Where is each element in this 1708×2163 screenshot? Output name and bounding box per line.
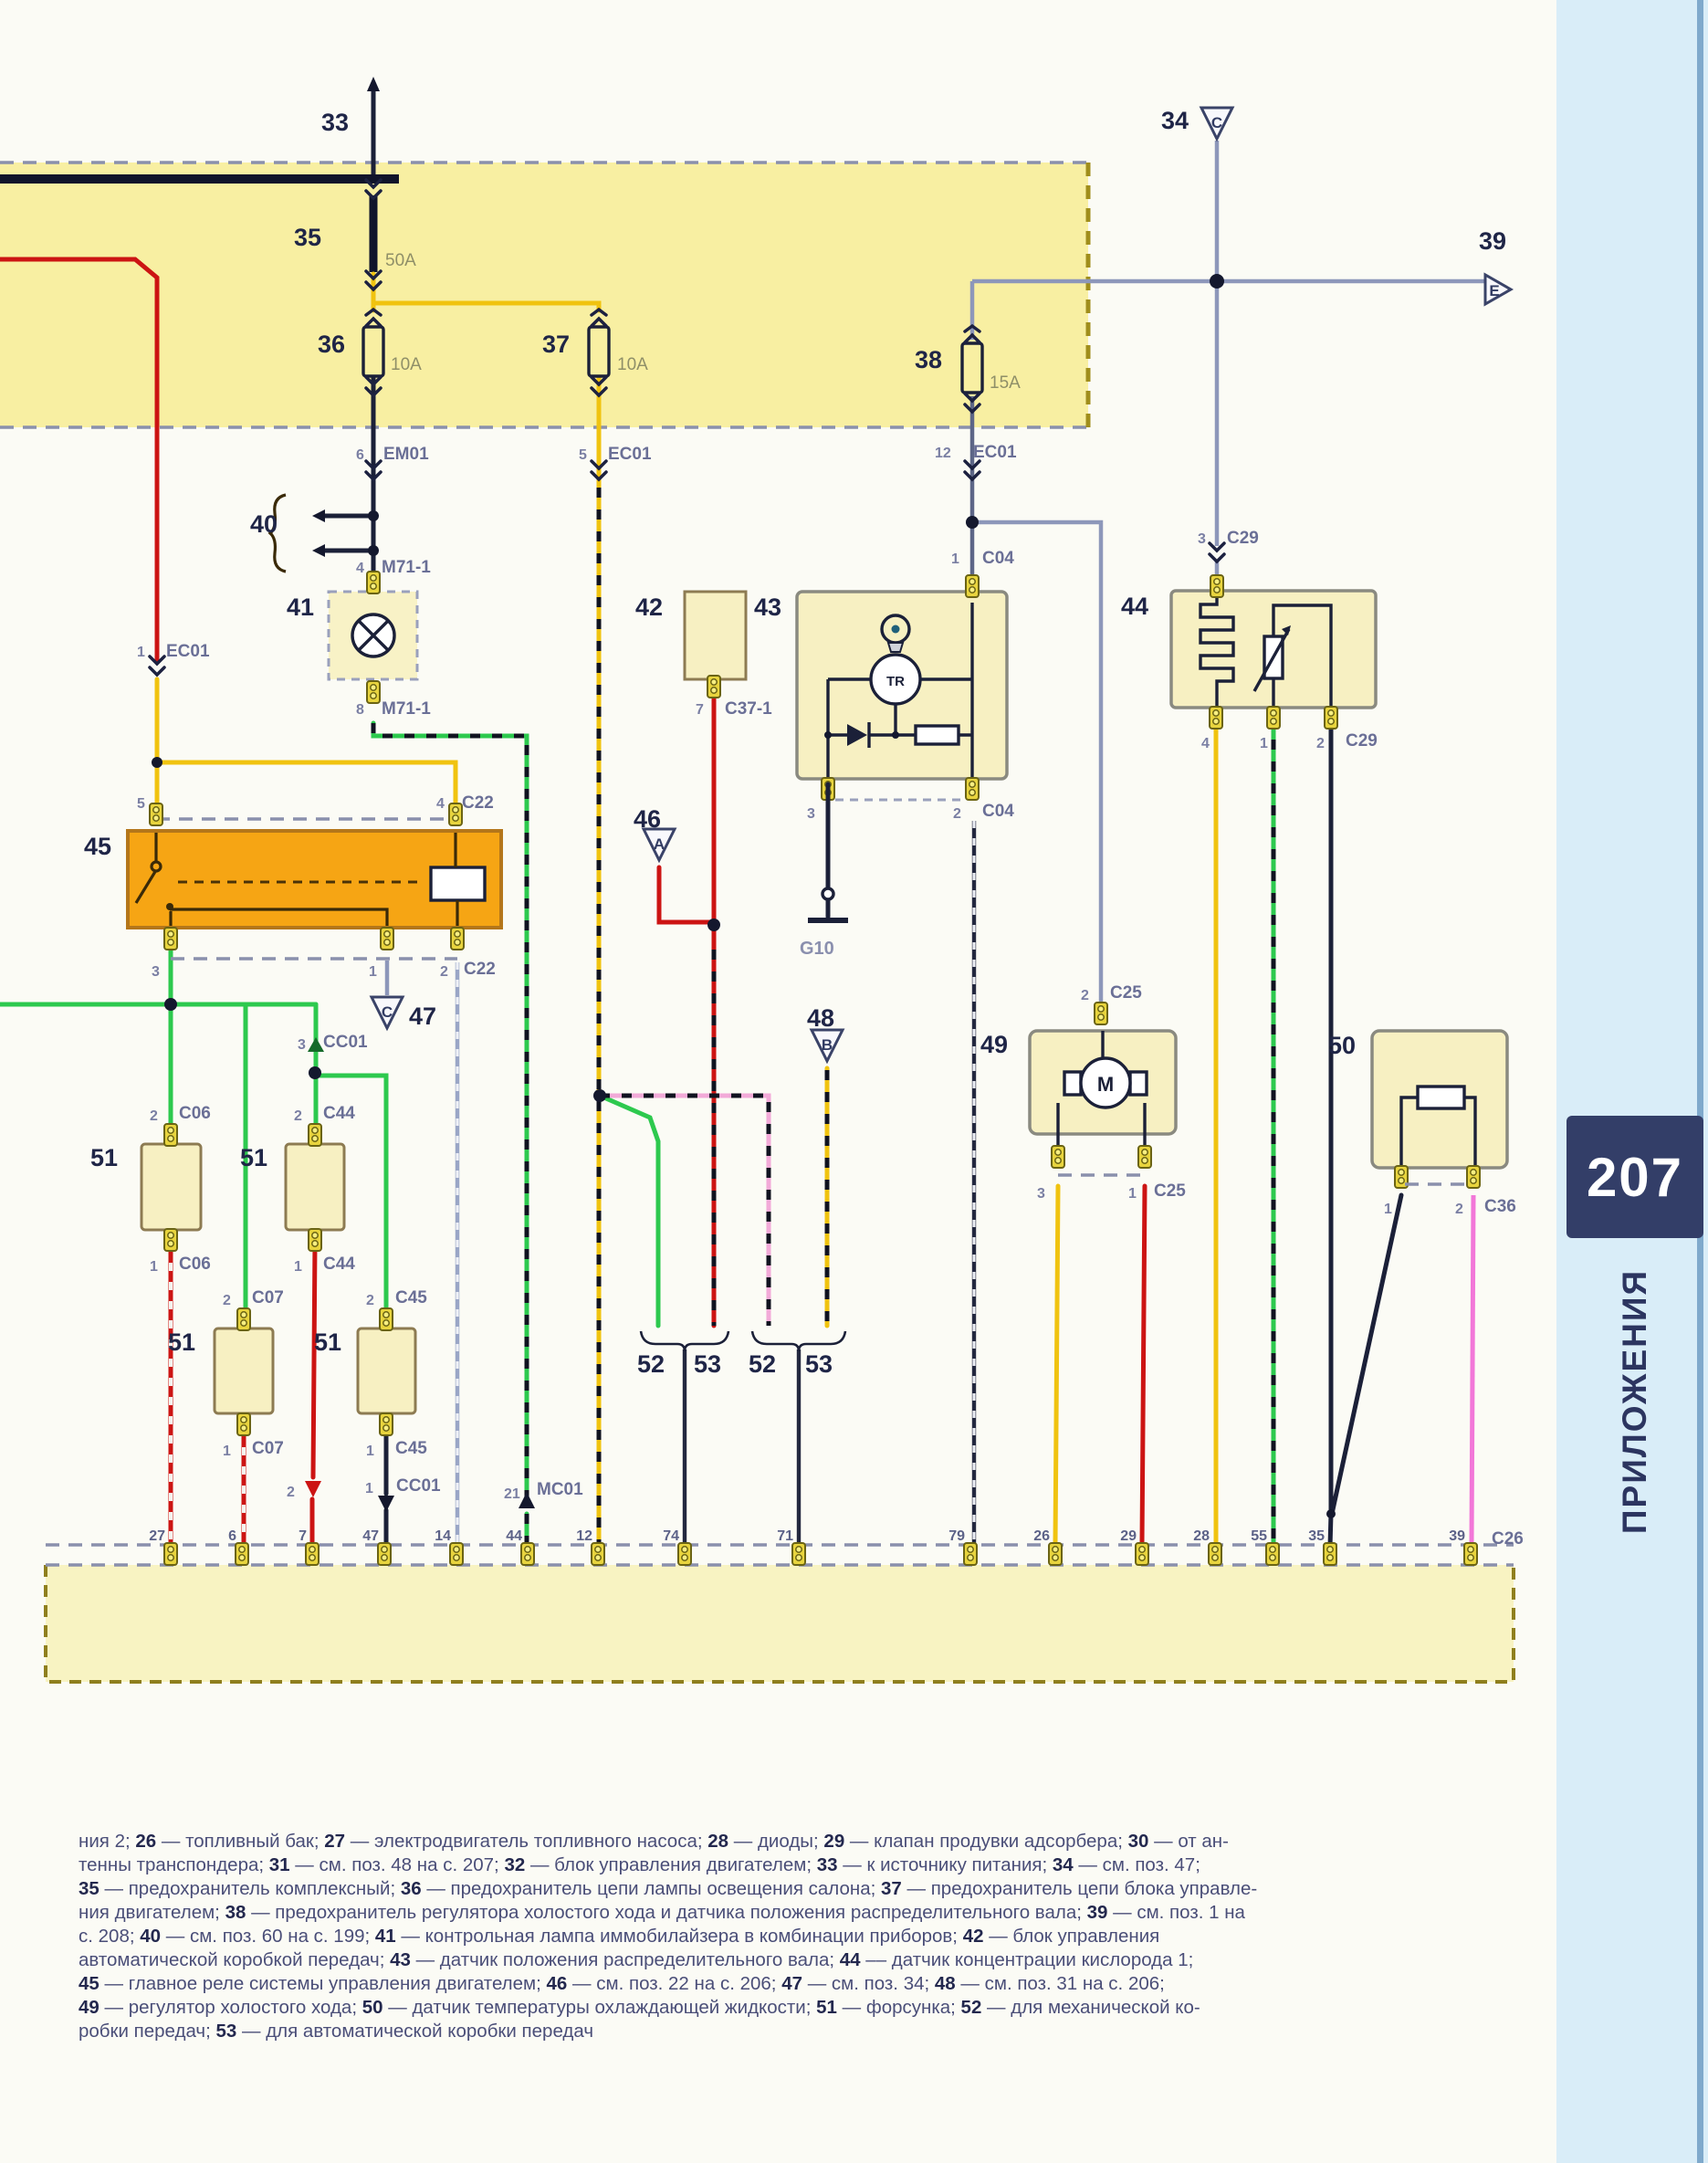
pin2-c36: 2 — [1455, 1202, 1463, 1217]
tri-letter-b48: B — [822, 1036, 833, 1054]
comp-52a: 52 — [637, 1350, 665, 1378]
ecu-pin-71: 71 — [777, 1528, 793, 1544]
fuse37-rating: 10A — [617, 355, 648, 374]
conn-c37-1: C37-1 — [725, 699, 772, 719]
pin2-c29: 2 — [1316, 736, 1325, 751]
conn-mc01: MC01 — [537, 1480, 583, 1499]
mt-at-braces — [641, 1331, 845, 1351]
conn-c36: C36 — [1484, 1197, 1516, 1216]
fuse38-rating: 15A — [990, 373, 1021, 393]
comp-48: 48 — [807, 1004, 834, 1032]
ground-g10: G10 — [800, 939, 834, 959]
oxygen-sensor — [1171, 575, 1376, 729]
ecu-pin-12: 12 — [576, 1528, 592, 1544]
comp-34: 34 — [1161, 107, 1189, 134]
pin2-c07: 2 — [223, 1293, 231, 1308]
pin2-c04: 2 — [953, 806, 961, 822]
ecu-box — [46, 1545, 1514, 1682]
pin1-c22: 1 — [369, 964, 377, 980]
conn-c04a: C04 — [982, 549, 1014, 568]
tri-letter-e39: E — [1489, 282, 1499, 299]
pin6: 6 — [356, 447, 364, 463]
conn-c25b: C25 — [1154, 1181, 1186, 1201]
pin1-c07: 1 — [223, 1444, 231, 1459]
manual-page: 207 ПРИЛОЖЕНИЯ ния 2; 26 — топливный бак… — [0, 0, 1708, 2163]
comp-50: 50 — [1328, 1032, 1356, 1059]
conn-c44a: C44 — [323, 1104, 355, 1123]
ecu-pin-79: 79 — [948, 1528, 965, 1544]
comp-46: 46 — [634, 805, 661, 833]
ecu-pin-27: 27 — [149, 1528, 165, 1544]
comp-51b: 51 — [240, 1144, 267, 1171]
conn-c06a: C06 — [179, 1104, 211, 1123]
injector-c45 — [358, 1308, 415, 1435]
comp-35: 35 — [294, 224, 321, 251]
pin8-m71: 8 — [356, 702, 364, 718]
pin4-c22: 4 — [436, 796, 445, 812]
pin12-ec01: 12 — [935, 446, 951, 461]
pin2-c25: 2 — [1081, 988, 1089, 1003]
pin1-c06: 1 — [150, 1259, 158, 1275]
conn-c22a: C22 — [462, 793, 494, 813]
conn-ec01c: EC01 — [973, 443, 1017, 462]
ecu-pin-44: 44 — [506, 1528, 522, 1544]
pin3-c29: 3 — [1198, 531, 1206, 547]
comp-41: 41 — [287, 593, 314, 621]
pin4-c29: 4 — [1201, 736, 1210, 751]
main-relay — [128, 803, 501, 959]
comp-44: 44 — [1121, 593, 1148, 620]
tri-letter-c34: C — [1211, 114, 1222, 131]
pin4-m71: 4 — [356, 561, 364, 576]
comp-51d: 51 — [314, 1328, 341, 1356]
pin2-c06: 2 — [150, 1108, 158, 1124]
comp-47: 47 — [409, 1003, 436, 1030]
comp-39: 39 — [1479, 227, 1506, 255]
comp-43: 43 — [754, 593, 781, 621]
comp-52b: 52 — [749, 1350, 776, 1378]
pin1-cc01: 1 — [365, 1481, 373, 1496]
pin3-cc01: 3 — [298, 1037, 306, 1053]
pin2-c45: 2 — [366, 1293, 374, 1308]
conn-c06b: C06 — [179, 1255, 211, 1274]
comp-37: 37 — [542, 331, 570, 358]
pin1-c04: 1 — [951, 551, 959, 567]
conn-cc01b: CC01 — [396, 1476, 441, 1496]
conn-c26: C26 — [1492, 1529, 1524, 1549]
injector-c44 — [286, 1124, 344, 1251]
pin1-c36: 1 — [1384, 1202, 1392, 1217]
conn-m71-1a: M71-1 — [382, 558, 431, 577]
pin2-cc01: 2 — [287, 1485, 295, 1500]
comp-40: 40 — [250, 510, 278, 538]
pin1-c25: 1 — [1128, 1186, 1137, 1202]
conn-m71-1b: M71-1 — [382, 699, 431, 719]
ecu-pin-74: 74 — [663, 1528, 679, 1544]
comp-38: 38 — [915, 346, 942, 373]
comp-42: 42 — [635, 593, 663, 621]
conn-cc01a: CC01 — [323, 1033, 368, 1052]
conn-c45a: C45 — [395, 1288, 427, 1307]
injector-c06 — [141, 1124, 201, 1251]
pin21-mc01: 21 — [504, 1486, 520, 1502]
comp-49: 49 — [980, 1031, 1008, 1058]
power-distribution-box — [0, 163, 1088, 427]
pin3-43: 3 — [807, 806, 815, 822]
tri-letter-a46: A — [654, 835, 665, 853]
ecu-pin-7: 7 — [299, 1528, 307, 1544]
ground-g10-symbol — [808, 784, 848, 920]
comp-36: 36 — [318, 331, 345, 358]
conn-em01: EM01 — [383, 445, 429, 464]
pin2-c44: 2 — [294, 1108, 302, 1124]
conn-c29b: C29 — [1346, 731, 1378, 751]
comp-53b: 53 — [805, 1350, 833, 1378]
comp-45: 45 — [84, 833, 111, 860]
sensor-tr-text: TR — [886, 674, 905, 689]
ecu-pin-39: 39 — [1449, 1528, 1465, 1544]
at-control-unit — [685, 592, 746, 698]
ecu-pin-26: 26 — [1033, 1528, 1050, 1544]
conn-c25a: C25 — [1110, 983, 1142, 1003]
pin1-c44: 1 — [294, 1259, 302, 1275]
ecu-pin-28: 28 — [1193, 1528, 1210, 1544]
conn-c45b: C45 — [395, 1439, 427, 1458]
motor-m-text: M — [1097, 1073, 1114, 1096]
pin1-c45: 1 — [366, 1444, 374, 1459]
pin1-ec01: 1 — [137, 645, 145, 660]
ecu-pin-14: 14 — [435, 1528, 451, 1544]
comp-53a: 53 — [694, 1350, 721, 1378]
conn-c29a: C29 — [1227, 529, 1259, 548]
fuse36-rating: 10A — [391, 355, 422, 374]
conn-c07a: C07 — [252, 1288, 284, 1307]
tri-letter-c47: C — [382, 1003, 393, 1021]
comp-51c: 51 — [168, 1328, 195, 1356]
pin5-ec01: 5 — [579, 447, 587, 463]
black-wires — [378, 716, 1401, 1547]
comp-51a: 51 — [90, 1144, 118, 1171]
pin2-c22: 2 — [440, 964, 448, 980]
comp-33: 33 — [321, 109, 349, 136]
conn-c22b: C22 — [464, 960, 496, 979]
pin3-c25: 3 — [1037, 1186, 1045, 1202]
immobilizer-lamp — [329, 572, 417, 703]
ecu-pin-47: 47 — [362, 1528, 379, 1544]
conn-ec01a: EC01 — [166, 642, 210, 661]
pin3-c22: 3 — [152, 964, 160, 980]
ecu-pin-35: 35 — [1308, 1528, 1325, 1544]
ecu-pin-6: 6 — [228, 1528, 236, 1544]
ecu-pin-29: 29 — [1120, 1528, 1137, 1544]
ecu-pin-55: 55 — [1251, 1528, 1267, 1544]
wiring-diagram: 3334353637383940414243444546474849505151… — [0, 0, 1708, 2163]
pin5-c22: 5 — [137, 796, 145, 812]
conn-ec01b: EC01 — [608, 445, 652, 464]
conn-c07b: C07 — [252, 1439, 284, 1458]
pin1-c29: 1 — [1260, 736, 1268, 751]
conn-c44b: C44 — [323, 1255, 355, 1274]
pin7-c37: 7 — [696, 702, 704, 718]
conn-c04b: C04 — [982, 802, 1014, 821]
fuse35-rating: 50A — [385, 251, 416, 270]
injector-c07 — [215, 1308, 273, 1435]
coolant-temp-sensor — [1372, 1031, 1507, 1188]
